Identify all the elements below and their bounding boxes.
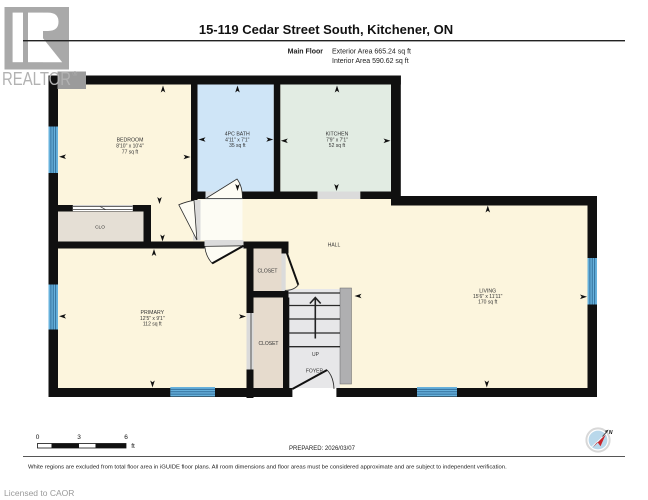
svg-text:CLOSET: CLOSET: [257, 268, 277, 274]
svg-text:6: 6: [124, 434, 128, 441]
svg-text:0: 0: [36, 434, 40, 441]
svg-text:N: N: [609, 430, 613, 436]
svg-text:77 sq ft: 77 sq ft: [122, 149, 139, 155]
svg-text:REALTOR: REALTOR: [2, 69, 71, 89]
svg-text:UP: UP: [312, 352, 320, 358]
svg-text:Main Floor: Main Floor: [288, 49, 324, 56]
svg-text:White regions are excluded fro: White regions are excluded from total fl…: [28, 465, 507, 471]
svg-text:Interior Area 590.62 sq ft: Interior Area 590.62 sq ft: [332, 58, 409, 65]
svg-text:CLOSET: CLOSET: [258, 341, 278, 347]
svg-text:CLO: CLO: [95, 225, 105, 231]
svg-text:ft: ft: [131, 443, 135, 450]
svg-text:Exterior Area 665.24 sq ft: Exterior Area 665.24 sq ft: [332, 49, 411, 56]
svg-text:HALL: HALL: [328, 242, 341, 248]
svg-text:35 sq ft: 35 sq ft: [229, 143, 246, 149]
svg-text:Licensed to CAOR: Licensed to CAOR: [4, 488, 74, 498]
svg-text:PREPARED: 2026/03/07: PREPARED: 2026/03/07: [289, 446, 356, 452]
svg-text:FOYER: FOYER: [306, 368, 324, 374]
svg-text:®: ®: [73, 70, 78, 78]
svg-text:3: 3: [77, 434, 81, 441]
svg-text:170 sq ft: 170 sq ft: [478, 300, 498, 306]
svg-text:15-119 Cedar Street South, Kit: 15-119 Cedar Street South, Kitchener, ON: [199, 22, 453, 37]
svg-text:112 sq ft: 112 sq ft: [143, 321, 162, 327]
svg-text:52 sq ft: 52 sq ft: [329, 143, 346, 149]
